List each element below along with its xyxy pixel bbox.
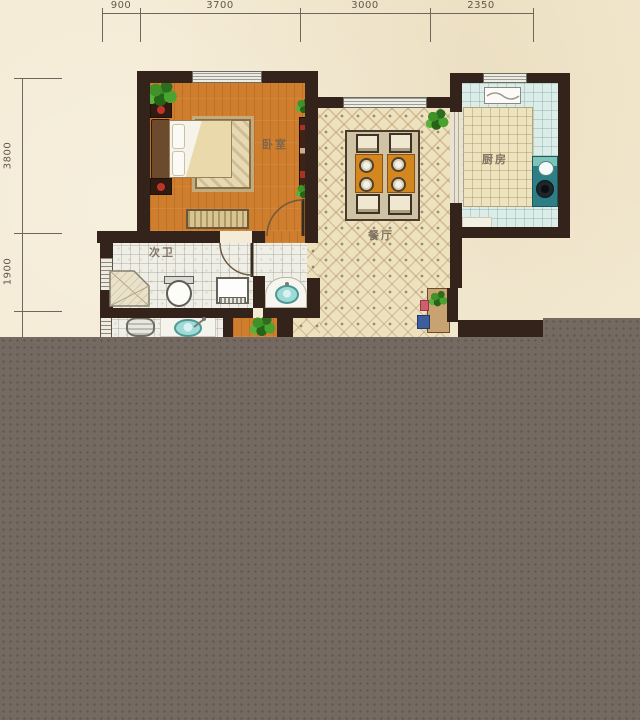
lower-sink	[174, 319, 202, 337]
plant-bedroom-corner	[146, 81, 178, 107]
wall-bedroom-left	[137, 71, 150, 243]
wall-dining-top-left	[312, 97, 343, 108]
bed-pillow-top	[172, 124, 185, 149]
kitchen-window	[483, 73, 527, 83]
plate-1	[359, 158, 374, 173]
dim-left-tick-1	[14, 78, 62, 79]
hall-floor-lower	[293, 318, 320, 337]
bed-pillow-bottom	[172, 151, 185, 176]
plate-2	[391, 157, 406, 172]
wall-bath-left-lower	[100, 290, 113, 308]
plant-dining-corner	[426, 109, 449, 131]
bedroom-bench	[186, 209, 249, 229]
bath-washer-panel	[219, 297, 246, 304]
dim-top-tick-4	[430, 8, 431, 42]
kitchen-stove-burner	[536, 180, 554, 198]
dining-chair-4	[388, 194, 412, 215]
dim-top-3000: 3000	[340, 0, 390, 11]
dining-chair-1	[356, 134, 379, 153]
wall-kitchen-top-left	[450, 73, 483, 83]
wall-L-horizontal	[458, 320, 545, 337]
wall-bath-top-stub	[252, 231, 265, 243]
dim-top-900: 900	[101, 0, 141, 11]
dining-label: 餐厅	[359, 227, 403, 243]
dim-left-tick-3	[14, 311, 62, 312]
bed-headboard	[151, 119, 170, 179]
dim-left-line	[22, 78, 23, 337]
kitchen-sink-basin	[538, 161, 554, 176]
sideboard-item-pink	[420, 300, 429, 311]
dim-top-line	[102, 13, 533, 14]
bed	[169, 120, 232, 178]
nightstand-bottom	[150, 178, 172, 195]
plate-4	[391, 177, 406, 192]
dim-top-3700: 3700	[195, 0, 245, 11]
wall-niche-bottom	[263, 308, 320, 318]
wall-L-vertical	[447, 288, 458, 322]
dim-top-tick-3	[300, 8, 301, 42]
wall-bath-right	[253, 276, 265, 308]
bedroom-door-threshold	[265, 231, 305, 243]
lower-left-louver	[100, 318, 112, 337]
dining-chair-2	[389, 133, 412, 153]
dim-top-tick-1	[102, 8, 103, 42]
kitchen-fridge	[484, 87, 521, 104]
dining-window	[343, 97, 427, 108]
lower-toilet	[126, 317, 155, 337]
dim-left-3800: 3800	[3, 131, 14, 181]
wall-lower-a	[223, 318, 233, 337]
censor-overlay-main	[0, 337, 640, 720]
dining-chair-3	[356, 194, 380, 214]
sideboard-item-blue	[417, 315, 430, 329]
dim-left-tick-2	[14, 233, 62, 234]
floorplan-canvas: 卧室 餐厅 厨房 次卫 900 3700 3000 2350 3800 1900	[0, 0, 640, 720]
wall-bath-top	[97, 231, 220, 243]
kitchen-doorway	[451, 112, 461, 203]
wall-kitchen-bottom	[462, 227, 570, 238]
wall-bath-left-upper	[100, 240, 113, 258]
dim-top-2350: 2350	[456, 0, 506, 11]
wall-kitchen-left-bottom	[450, 203, 462, 288]
dim-top-tick-5	[533, 8, 534, 42]
kitchen-label: 厨房	[473, 151, 517, 167]
dim-left-1900: 1900	[3, 247, 14, 297]
plant-lower-hall	[250, 315, 276, 337]
wall-bath-bottom	[100, 308, 253, 318]
plant-on-sideboard	[429, 291, 448, 307]
plate-3	[359, 177, 374, 192]
bath-toilet	[166, 280, 192, 307]
wall-kitchen-right	[558, 73, 570, 238]
kitchen-sink-unit	[532, 156, 558, 207]
bath-label: 次卫	[140, 244, 184, 260]
bedroom-label: 卧室	[253, 136, 297, 152]
bath-left-louver	[100, 258, 113, 290]
dim-top-tick-2	[140, 8, 141, 42]
wall-lower-b	[277, 318, 293, 337]
bedroom-window	[192, 71, 262, 83]
vanity-sink	[275, 285, 299, 304]
